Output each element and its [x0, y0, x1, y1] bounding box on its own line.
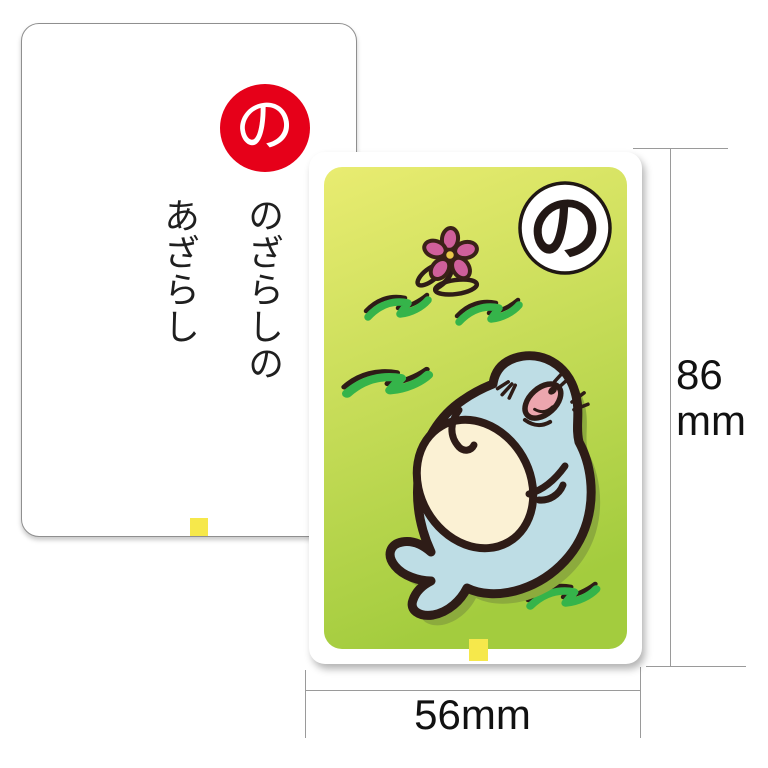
- picture-card-kana-badge: の: [520, 182, 610, 275]
- height-unit: mm: [676, 398, 746, 444]
- height-dimension-label: 86 mm: [676, 352, 746, 444]
- picture-card-kana: の: [524, 182, 607, 275]
- width-dimension-right-tick: [640, 667, 641, 738]
- reading-card-phrase-line-1: のざらしの: [244, 197, 280, 382]
- reading-card-kana: の: [231, 92, 299, 164]
- picture-card-yellow-tab: [469, 639, 488, 661]
- karuta-card-mockup: の のざらしの あざらし: [0, 0, 768, 768]
- width-dimension-label: 56mm: [305, 692, 640, 738]
- reading-card-phrase-line-2: あざらし: [160, 197, 196, 345]
- picture-card: の: [309, 152, 642, 664]
- height-value: 86: [676, 352, 746, 398]
- picture-card-artwork: の: [309, 152, 642, 664]
- height-dimension-line: [670, 149, 671, 667]
- reading-card-yellow-tab: [190, 518, 208, 536]
- reading-card: の のざらしの あざらし: [21, 23, 357, 537]
- reading-card-kana-badge: の: [220, 84, 310, 172]
- height-dimension-top-tick: [633, 148, 728, 149]
- height-dimension-bottom-tick: [646, 666, 746, 667]
